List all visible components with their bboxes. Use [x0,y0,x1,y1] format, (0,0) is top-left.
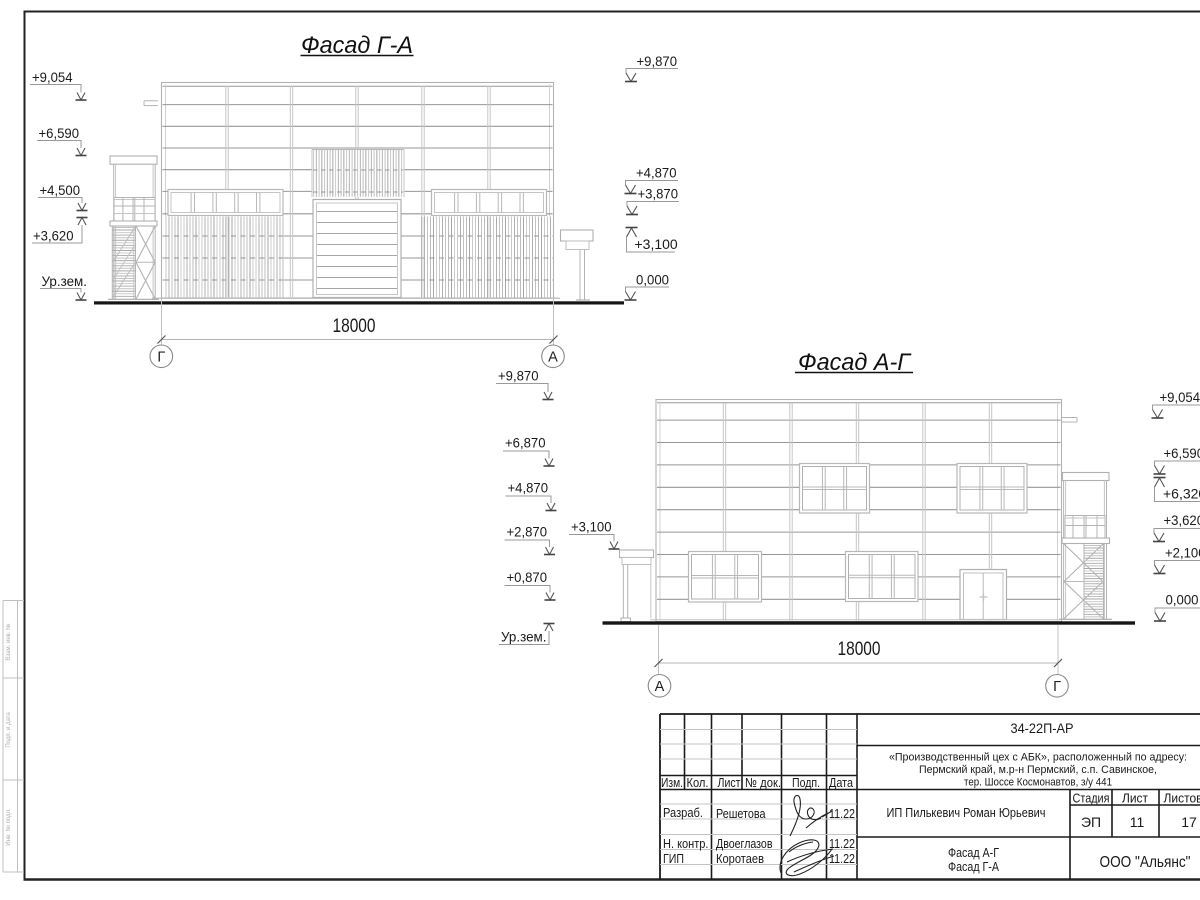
svg-text:А: А [655,679,665,695]
svg-text:Подп. и дата: Подп. и дата [6,712,12,748]
svg-text:17: 17 [1181,814,1197,830]
svg-text:+3,620: +3,620 [33,228,74,244]
svg-text:18000: 18000 [333,316,376,337]
svg-text:18000: 18000 [838,639,881,660]
svg-text:+9,054: +9,054 [1160,389,1200,405]
svg-text:0,000: 0,000 [636,272,669,288]
svg-text:+9,054: +9,054 [32,69,73,85]
svg-text:+6,590: +6,590 [1164,445,1200,461]
svg-text:34-22П-АР: 34-22П-АР [1011,720,1074,736]
svg-text:+4,870: +4,870 [508,480,549,496]
svg-text:11.22: 11.22 [829,806,855,821]
svg-text:Двоеглазов: Двоеглазов [716,836,773,851]
svg-text:Ур.зем.: Ур.зем. [42,273,88,289]
svg-text:+3,620: +3,620 [1164,512,1200,528]
svg-text:Н. контр.: Н. контр. [663,836,709,851]
svg-text:Г: Г [157,350,165,366]
svg-text:Инв. № подл.: Инв. № подл. [5,808,12,846]
svg-text:Фасад Г-А: Фасад Г-А [948,859,999,874]
svg-text:0,000: 0,000 [1166,592,1199,608]
svg-text:Решетова: Решетова [716,806,766,821]
svg-text:+4,870: +4,870 [636,165,677,181]
svg-text:+6,590: +6,590 [39,125,80,141]
svg-text:+3,870: +3,870 [638,186,679,202]
svg-text:Изм.: Изм. [661,775,683,790]
svg-text:Дата: Дата [829,775,854,790]
svg-text:Кол.: Кол. [687,775,709,790]
svg-text:Лист: Лист [1122,792,1148,806]
svg-text:ГИП: ГИП [663,851,684,866]
svg-text:+9,870: +9,870 [637,53,678,69]
svg-text:А: А [548,350,558,366]
svg-text:11.22: 11.22 [829,851,855,866]
svg-text:+4,500: +4,500 [40,182,81,198]
svg-text:Взам. инв. №: Взам. инв. № [5,623,12,660]
svg-text:«Производственный цех с АБК»,: «Производственный цех с АБК», расположен… [889,752,1187,764]
svg-text:+6,320: +6,320 [1163,486,1200,502]
svg-text:Фасад А-Г: Фасад А-Г [948,845,999,860]
svg-text:+3,100: +3,100 [571,519,612,535]
svg-text:+2,100: +2,100 [1165,545,1200,561]
svg-text:+0,870: +0,870 [507,569,548,585]
svg-text:Листов: Листов [1164,792,1200,806]
svg-text:Стадия: Стадия [1073,792,1110,806]
svg-text:+2,870: +2,870 [507,524,548,540]
svg-text:Подп.: Подп. [792,775,820,790]
svg-text:Пермский край, м.р-н Пермский,: Пермский край, м.р-н Пермский, с.п. Сави… [919,764,1157,776]
svg-text:тер. Шоссе Космонавтов, з/у 44: тер. Шоссе Космонавтов, з/у 441 [964,777,1112,789]
svg-text:ЭП: ЭП [1081,814,1101,830]
svg-text:Ур.зем.: Ур.зем. [501,629,547,645]
svg-text:Лист: Лист [718,775,741,790]
svg-text:№ док.: № док. [745,775,781,790]
svg-text:11: 11 [1130,814,1145,830]
svg-text:Разраб.: Разраб. [663,805,703,820]
svg-text:+3,100: +3,100 [635,236,678,252]
svg-text:Г: Г [1053,679,1061,695]
svg-text:Коротаев: Коротаев [716,851,764,866]
svg-text:ООО "Альянс": ООО "Альянс" [1100,854,1191,871]
svg-text:+9,870: +9,870 [498,368,539,384]
svg-text:ИП Пилькевич Роман Юрьевич: ИП Пилькевич Роман Юрьевич [887,805,1046,820]
svg-text:+6,870: +6,870 [505,435,546,451]
